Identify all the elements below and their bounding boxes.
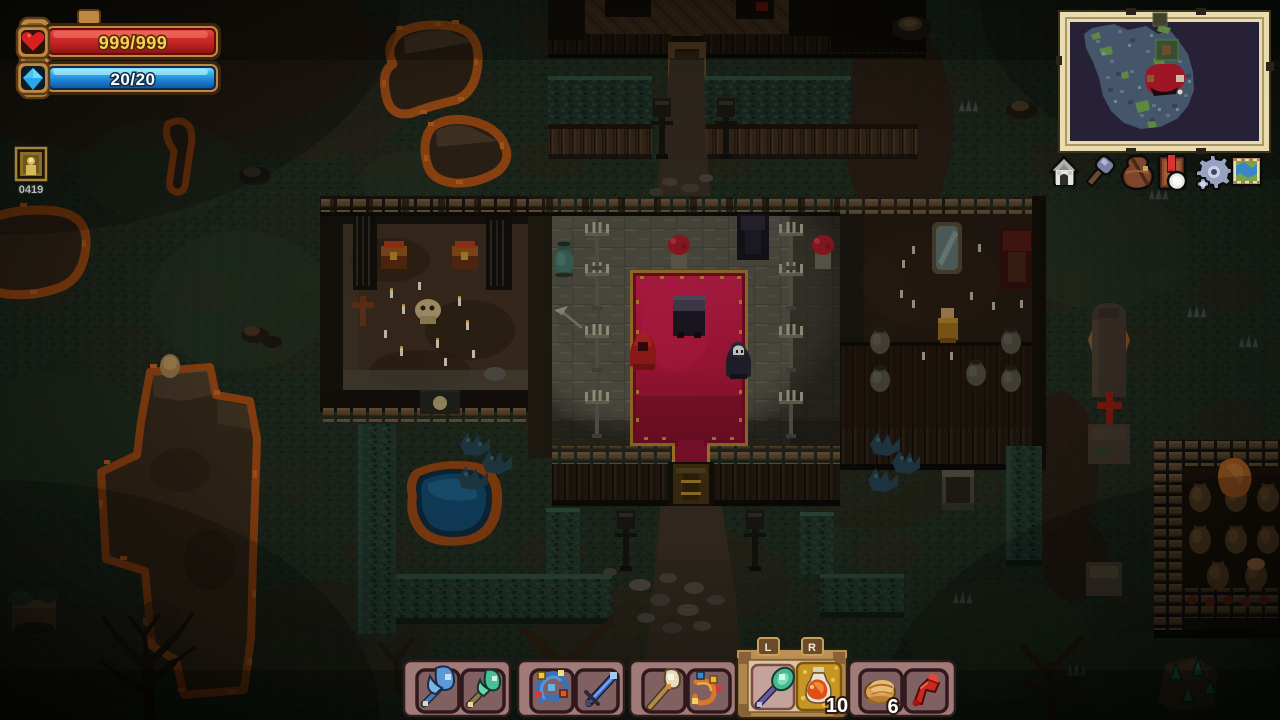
svg-text:20/20: 20/20 — [110, 70, 155, 89]
svg-text:0419: 0419 — [19, 184, 43, 196]
svg-text:999/999: 999/999 — [99, 33, 168, 53]
svg-text:R: R — [808, 642, 816, 654]
svg-text:10: 10 — [826, 695, 848, 717]
svg-text:6: 6 — [887, 696, 898, 718]
svg-text:L: L — [765, 642, 772, 654]
